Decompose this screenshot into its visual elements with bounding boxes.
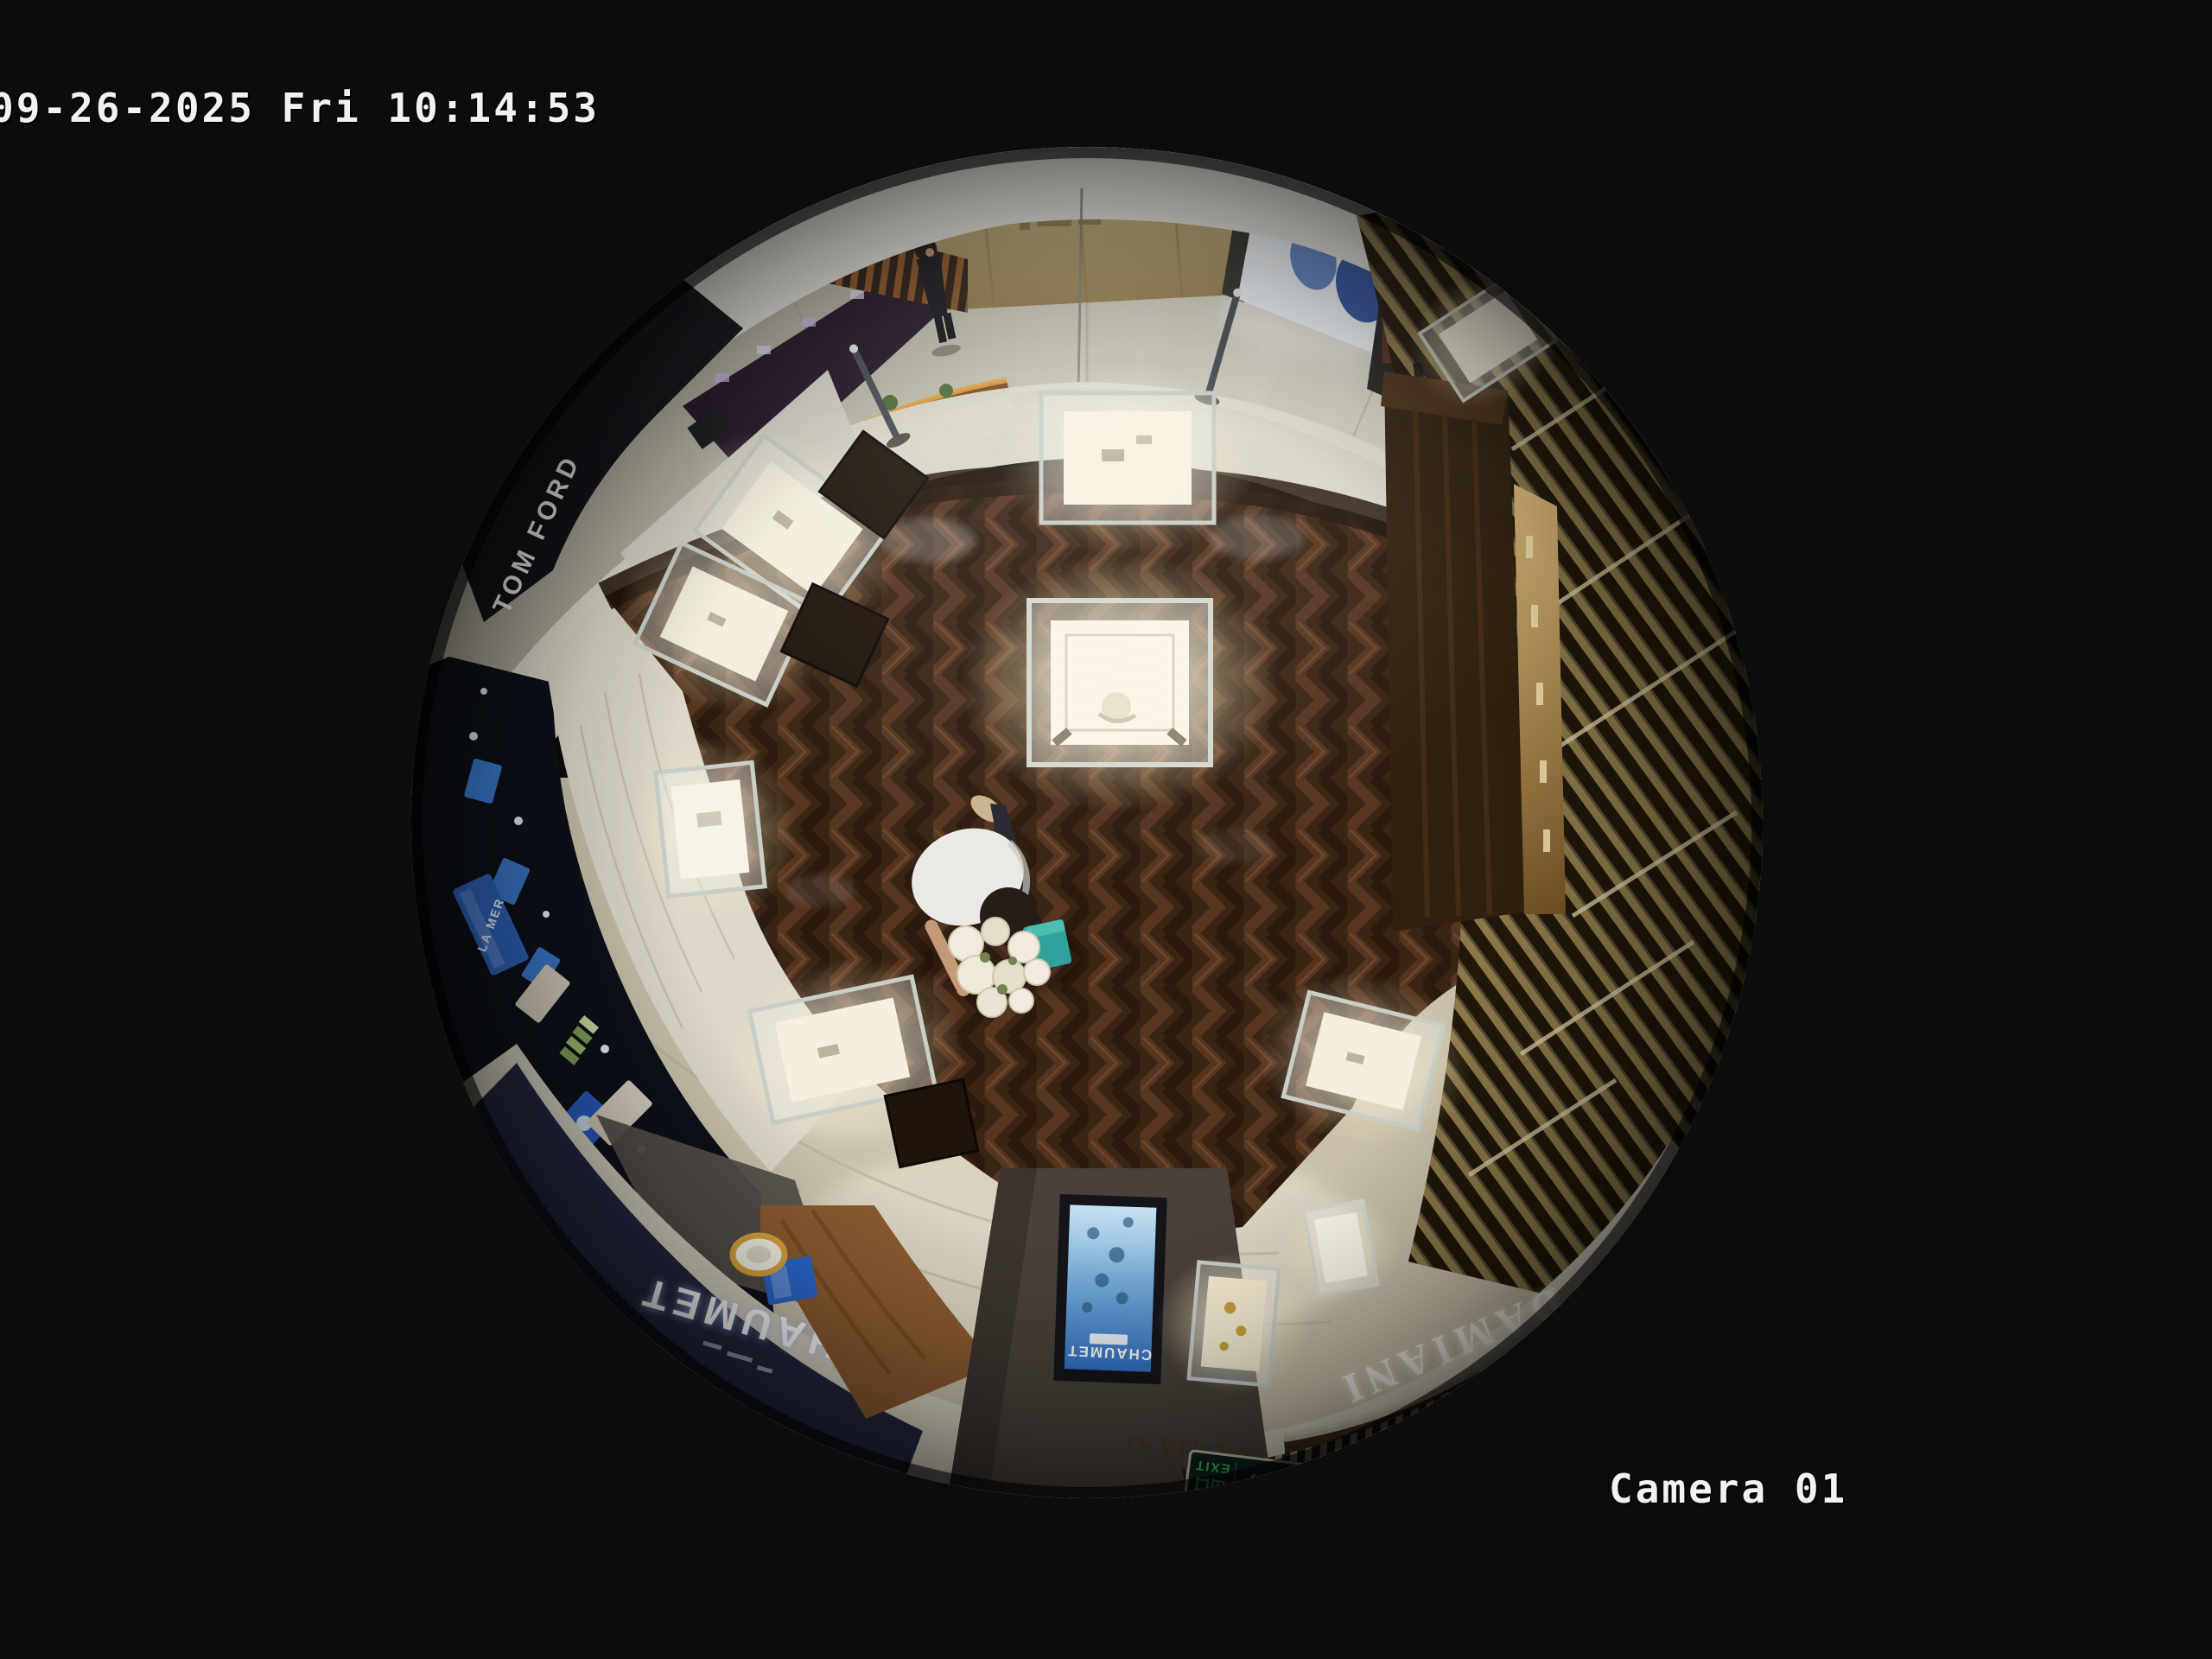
osd-camera-label: Camera 01 (1609, 1469, 1847, 1509)
cctv-frame: TOM FORD LA MER (0, 0, 2212, 1659)
osd-timestamp: 09-26-2025 Fri 10:14:53 (0, 88, 600, 128)
fisheye-video-frame: TOM FORD LA MER (0, 0, 2212, 1659)
